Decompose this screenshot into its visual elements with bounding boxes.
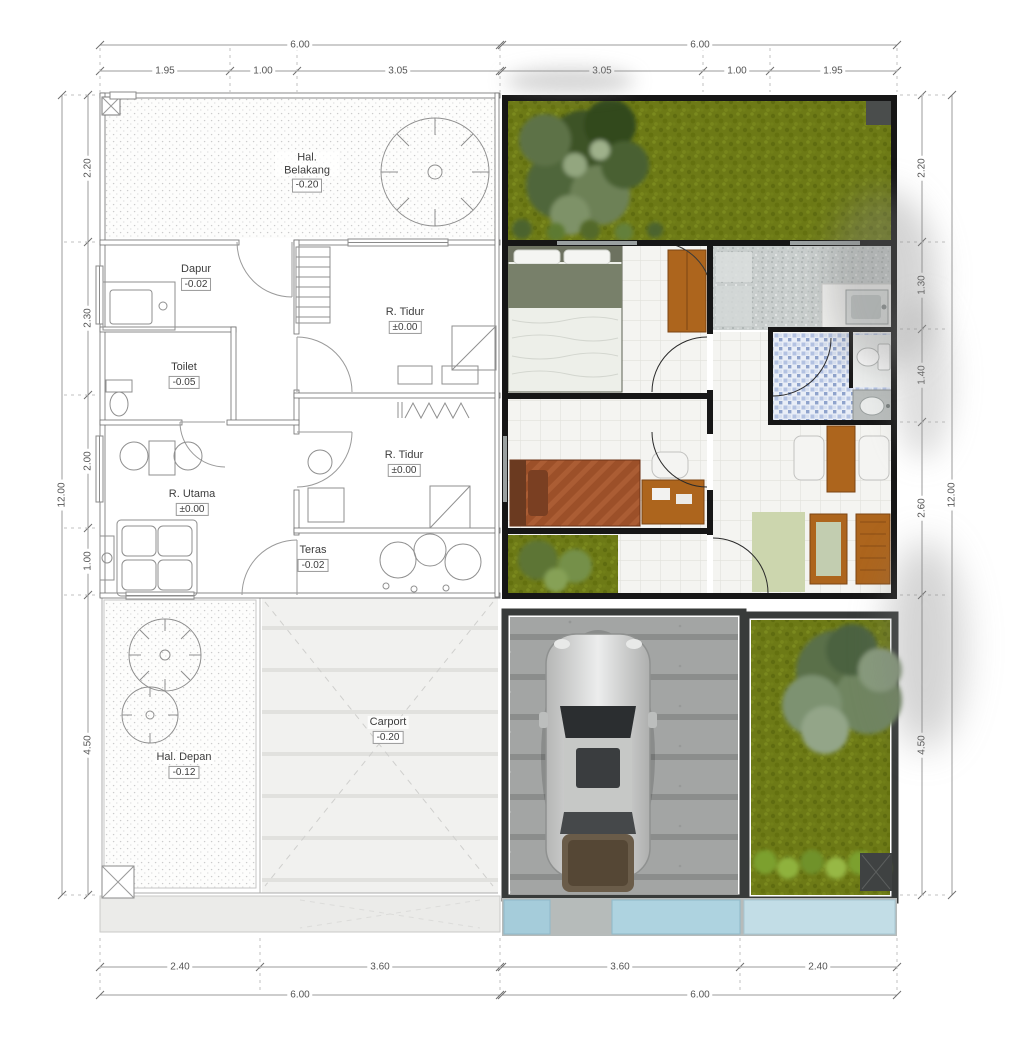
- dim-bottom-seg: 2.40: [167, 962, 192, 973]
- room-label-hal-belakang: Hal. Belakang -0.20: [275, 152, 339, 193]
- desk-laptop: [652, 488, 670, 500]
- bathroom: [771, 333, 893, 421]
- room-label-r-tidur-2: R. Tidur ±0.00: [383, 449, 426, 477]
- dim-top-seg: 1.95: [152, 66, 177, 77]
- room-elevation: ±0.00: [388, 464, 421, 478]
- corner-column-sketch: [102, 97, 120, 115]
- dim-right-seg: 2.60: [917, 495, 928, 520]
- room-name: R. Tidur: [383, 449, 426, 462]
- dim-top-seg: 3.05: [589, 66, 614, 77]
- dim-left-seg: 1.00: [83, 548, 94, 573]
- room-elevation: -0.02: [298, 559, 329, 573]
- dining-table: [827, 426, 855, 492]
- room-elevation: ±0.00: [176, 503, 209, 517]
- dim-bottom-seg: 3.60: [607, 962, 632, 973]
- dim-right-seg: 1.30: [917, 272, 928, 297]
- room-label-teras: Teras -0.02: [298, 544, 329, 572]
- door-arcs-sketch: [180, 242, 352, 595]
- bed-double: [508, 246, 622, 392]
- sidewalk-strip: [100, 896, 500, 932]
- dim-bottom-seg: 3.60: [367, 962, 392, 973]
- car-mirror-left: [539, 712, 548, 728]
- car-headlight: [626, 639, 642, 649]
- room-name: Hal. Depan: [154, 751, 213, 764]
- dim-top-seg: 1.00: [724, 66, 749, 77]
- dim-right-seg: 2.20: [917, 155, 928, 180]
- water-tile: [504, 900, 550, 934]
- room-label-dapur: Dapur -0.02: [179, 263, 213, 291]
- dim-top-seg: 1.00: [250, 66, 275, 77]
- dim-left-overall: 12.00: [57, 479, 68, 510]
- room-name: R. Utama: [167, 488, 217, 501]
- car-mirror-right: [648, 712, 657, 728]
- kitchen-counter-sketch: [103, 282, 175, 330]
- bed-single: [510, 460, 640, 526]
- room-elevation: -0.20: [292, 179, 323, 193]
- car-headlight: [554, 639, 570, 649]
- room-label-r-tidur-1: R. Tidur ±0.00: [384, 306, 427, 334]
- desk-papers: [676, 494, 692, 504]
- car-trunk-inner: [568, 840, 628, 886]
- room-elevation: -0.12: [169, 766, 200, 780]
- rug: [752, 512, 805, 592]
- stepping-stone: [716, 286, 752, 326]
- entry-paving: [502, 898, 897, 936]
- floor-plan-drawing: [0, 0, 1024, 1042]
- room-name: Dapur: [179, 263, 213, 276]
- car-rear-window: [560, 812, 636, 834]
- room-name: Toilet: [169, 361, 200, 374]
- dim-top-overall-right: 6.00: [687, 40, 712, 51]
- right-render-half: [502, 95, 902, 936]
- room-label-r-utama: R. Utama ±0.00: [167, 488, 217, 516]
- wall-vent-hatch-sketch: [398, 402, 469, 418]
- dim-bottom-overall-left: 6.00: [287, 990, 312, 1001]
- dim-right-seg: 1.40: [917, 362, 928, 387]
- desk: [642, 480, 704, 524]
- dim-top-overall-left: 6.00: [287, 40, 312, 51]
- dim-bottom-seg: 2.40: [805, 962, 830, 973]
- stepping-stone: [716, 252, 752, 282]
- floor-plan-canvas: 6.00 6.00 1.95 1.00 3.05 3.05 1.00 1.95 …: [0, 0, 1024, 1042]
- dim-bottom-overall-right: 6.00: [687, 990, 712, 1001]
- water-tile: [744, 900, 895, 934]
- room-elevation: -0.05: [169, 376, 200, 390]
- toilet-fixture-sketch: [106, 380, 132, 416]
- room-elevation: -0.02: [181, 278, 212, 292]
- gate-column: [102, 866, 134, 898]
- dim-right-overall: 12.00: [947, 479, 958, 510]
- room-name: Carport: [368, 716, 409, 729]
- dim-top-seg: 3.05: [385, 66, 410, 77]
- car-windshield: [560, 706, 636, 740]
- left-plan-half: [96, 92, 500, 932]
- dim-top-seg: 1.95: [820, 66, 845, 77]
- room-elevation: ±0.00: [389, 321, 422, 335]
- garage: [505, 612, 743, 898]
- teras-shrubs-sketch: [380, 534, 481, 592]
- dim-left-seg: 2.00: [83, 448, 94, 473]
- dim-left-seg: 2.30: [83, 305, 94, 330]
- kitchen-sink: [846, 290, 888, 324]
- car: [539, 630, 657, 892]
- room-name: R. Tidur: [384, 306, 427, 319]
- dining-chair: [859, 436, 889, 480]
- dim-right-seg: 4.50: [917, 732, 928, 757]
- room-label-carport: Carport -0.20: [368, 716, 409, 744]
- wardrobe-sketch: [296, 247, 330, 323]
- dining-chair: [794, 436, 824, 480]
- room-name: Teras: [298, 544, 329, 557]
- bedroom1-furniture-sketch: [398, 326, 496, 384]
- front-lawn: [746, 615, 902, 900]
- dim-left-seg: 2.20: [83, 155, 94, 180]
- backyard-column: [866, 99, 894, 125]
- car-sunroof: [576, 748, 620, 788]
- dim-left-seg: 4.50: [83, 732, 94, 757]
- room-name: Hal. Belakang: [275, 152, 339, 177]
- room-elevation: -0.20: [373, 731, 404, 745]
- dining-set-sketch: [120, 441, 202, 475]
- room-label-hal-depan: Hal. Depan -0.12: [154, 751, 213, 779]
- room-label-toilet: Toilet -0.05: [169, 361, 200, 389]
- front-yard-area-sketch: [104, 600, 256, 888]
- sofa-set-sketch: [100, 520, 197, 596]
- water-tile: [612, 900, 740, 934]
- washbasin: [853, 390, 893, 421]
